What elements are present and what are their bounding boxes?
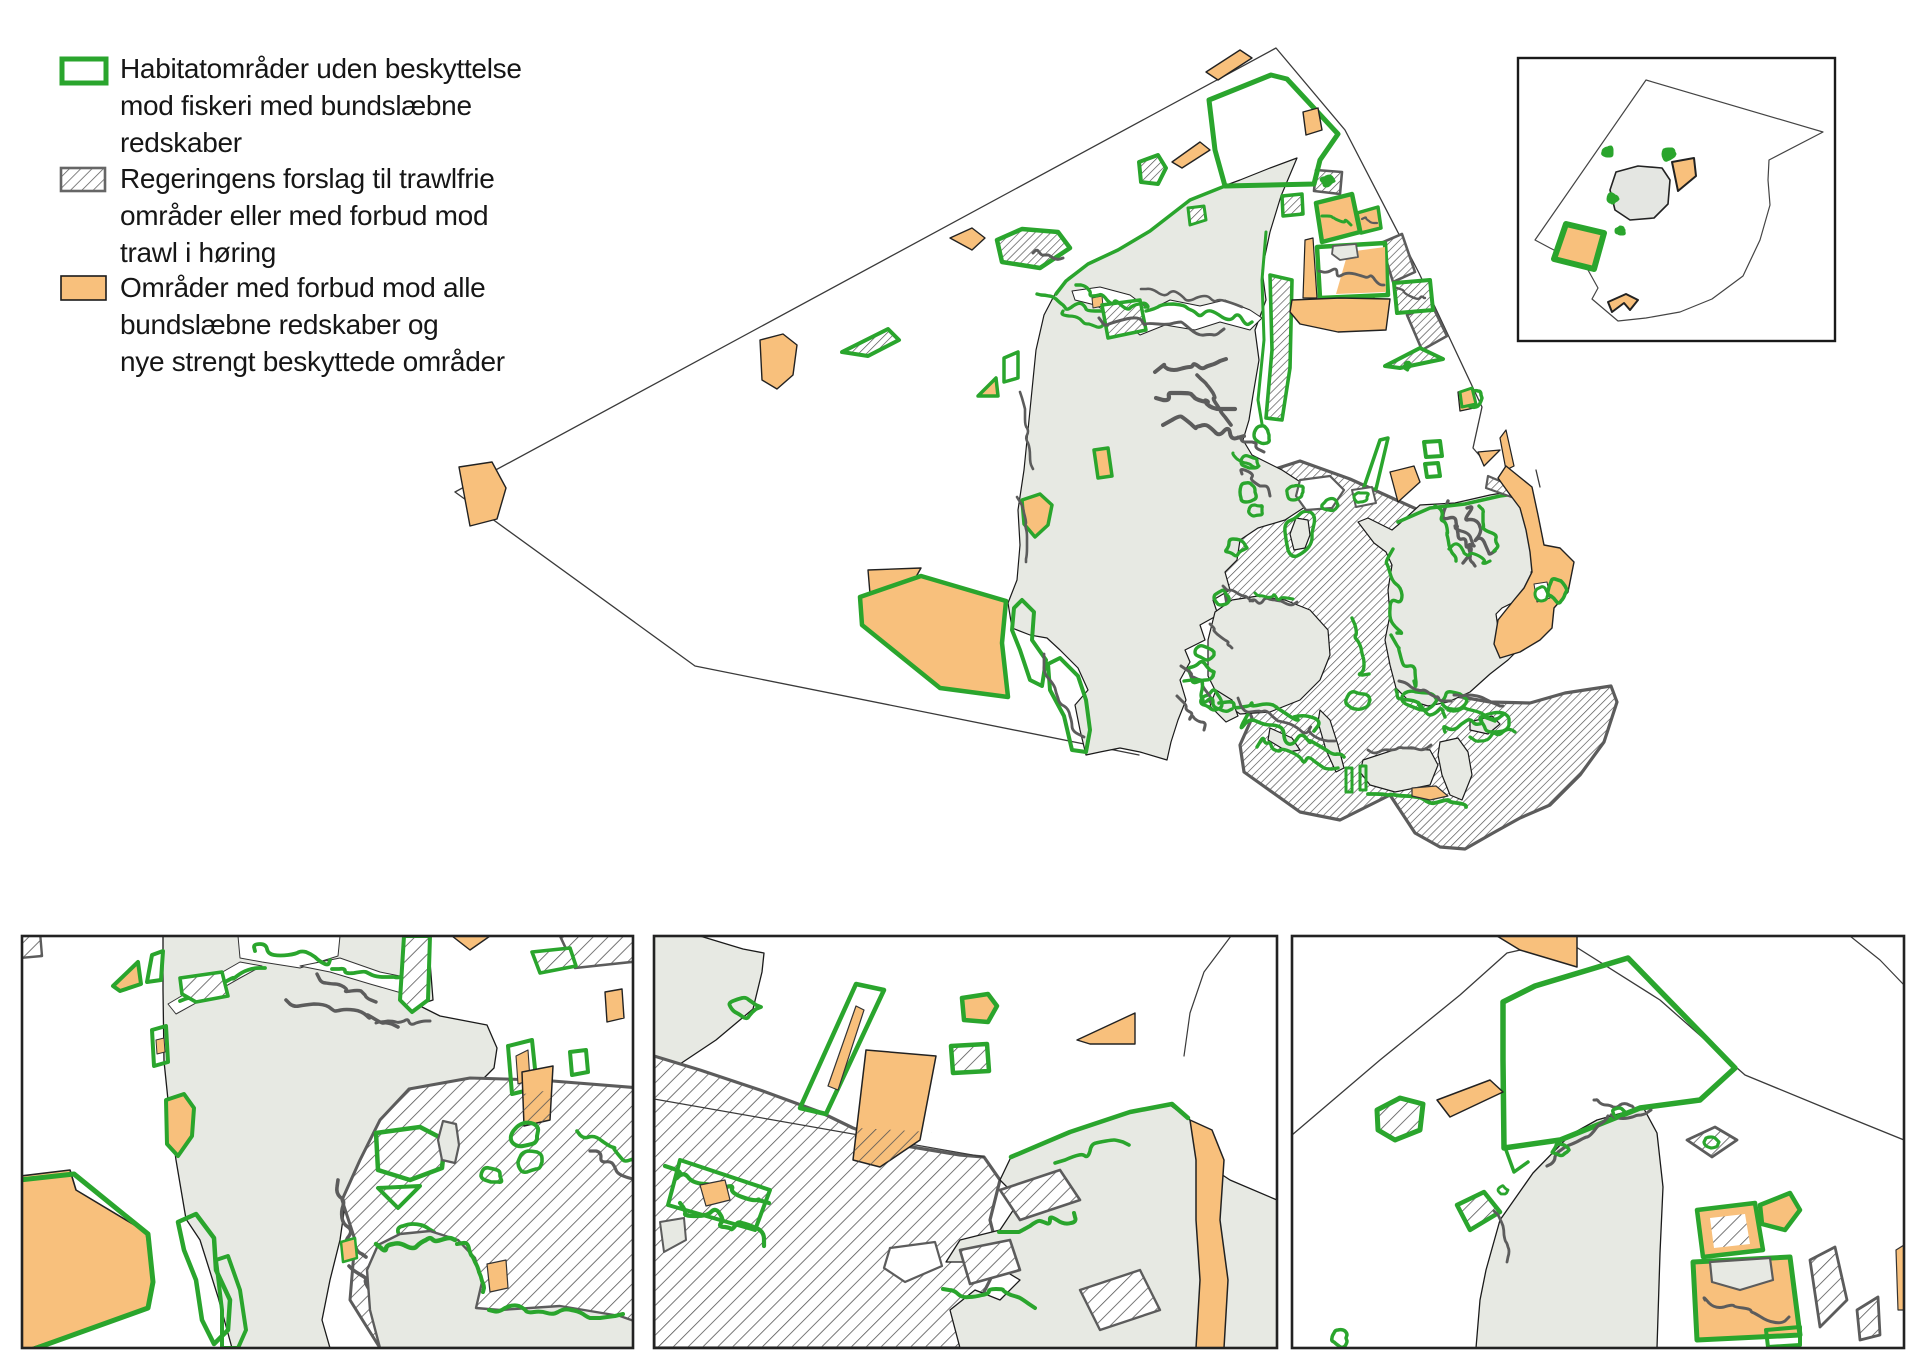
svg-text:nye strengt beskyttede områder: nye strengt beskyttede områder [120,346,505,377]
svg-text:bundslæbne redskaber og: bundslæbne redskaber og [120,309,438,340]
svg-text:Regeringens forslag til trawlf: Regeringens forslag til trawlfrie [120,163,495,194]
svg-text:områder eller med forbud mod: områder eller med forbud mod [120,200,488,231]
svg-text:mod fiskeri med bundslæbne: mod fiskeri med bundslæbne [120,90,472,121]
svg-text:trawl i høring: trawl i høring [120,237,276,268]
svg-text:Habitatområder uden beskyttels: Habitatområder uden beskyttelse [120,53,522,84]
svg-text:redskaber: redskaber [120,127,242,158]
svg-text:Områder med forbud mod alle: Områder med forbud mod alle [120,272,485,303]
